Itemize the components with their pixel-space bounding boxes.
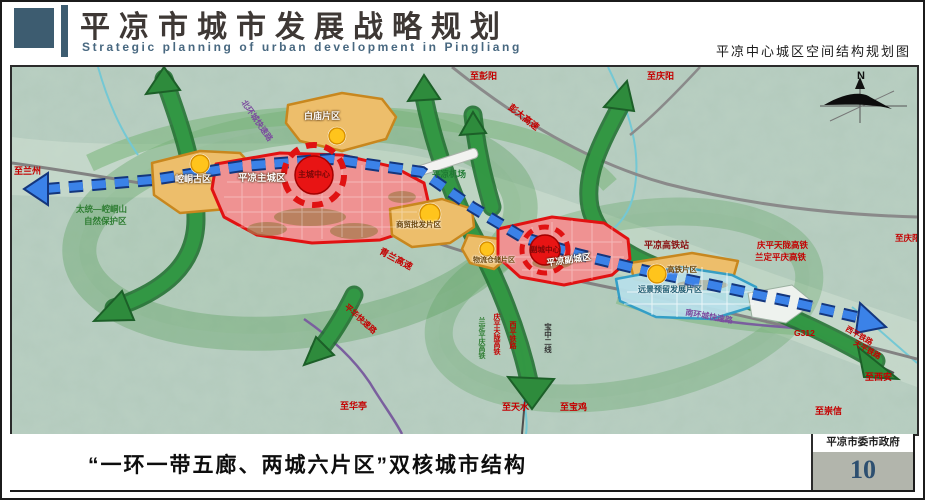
header-accent-square: [14, 8, 54, 48]
page-subtitle-english: Strategic planning of urban development …: [82, 40, 522, 54]
structure-slogan: “一环一带五廊、两城六片区”双核城市结构: [88, 449, 527, 479]
planning-map: N至兰州至彭阳至庆阳至庆阳彭大高速青兰高速庆平天陇高铁兰定平庆高铁平凉高铁站G3…: [10, 65, 919, 436]
planning-slide: 平凉市城市发展战略规划 Strategic planning of urban …: [0, 0, 925, 500]
header-accent-bar: [61, 5, 68, 57]
page-number: 10: [813, 452, 913, 490]
header: 平凉市城市发展战略规划 Strategic planning of urban …: [2, 2, 923, 63]
authority-box: 平凉市委市政府 10: [811, 434, 913, 490]
authority-name: 平凉市委市政府: [813, 434, 913, 452]
map-graphics: [12, 67, 917, 434]
footer: “一环一带五廊、两城六片区”双核城市结构 平凉市委市政府 10: [10, 434, 915, 492]
map-caption: 平凉中心城区空间结构规划图: [716, 41, 911, 60]
